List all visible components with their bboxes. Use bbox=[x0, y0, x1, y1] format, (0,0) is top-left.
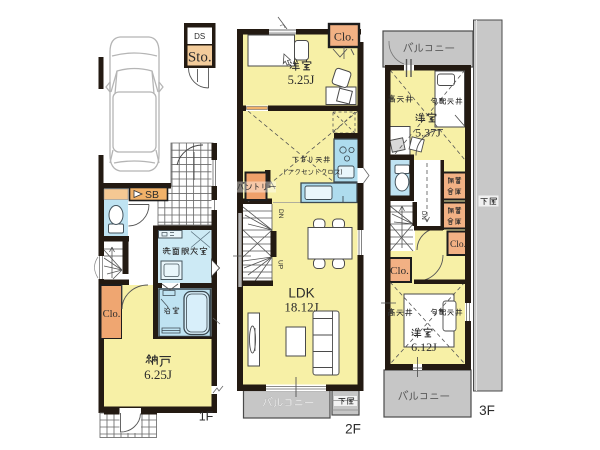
svg-text:2F: 2F bbox=[345, 422, 361, 437]
svg-text:1F: 1F bbox=[199, 410, 214, 424]
svg-text:DN: DN bbox=[277, 209, 284, 219]
svg-text:6.25J: 6.25J bbox=[144, 367, 172, 382]
svg-text:3F: 3F bbox=[479, 403, 495, 418]
svg-text:Clo.: Clo. bbox=[103, 309, 121, 320]
svg-text:5.37J: 5.37J bbox=[415, 126, 441, 140]
svg-text:Sto.: Sto. bbox=[188, 50, 212, 66]
svg-text:DS: DS bbox=[194, 32, 205, 41]
svg-text:LDK: LDK bbox=[288, 286, 314, 301]
svg-text:5.25J: 5.25J bbox=[288, 73, 315, 87]
svg-text:SB: SB bbox=[145, 189, 159, 201]
svg-text:Clo.: Clo. bbox=[334, 30, 354, 44]
svg-text:18.12J: 18.12J bbox=[284, 300, 318, 315]
svg-text:Clo.: Clo. bbox=[390, 265, 409, 277]
svg-text:Clo.: Clo. bbox=[450, 240, 466, 250]
svg-text:UP: UP bbox=[277, 260, 284, 269]
svg-text:6.12J: 6.12J bbox=[411, 340, 437, 354]
